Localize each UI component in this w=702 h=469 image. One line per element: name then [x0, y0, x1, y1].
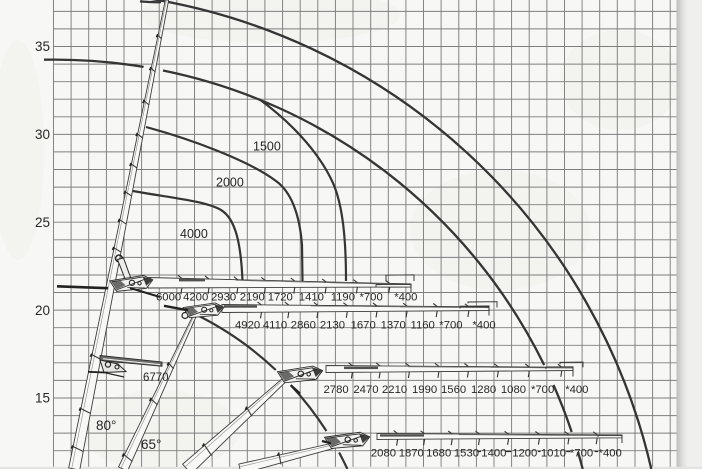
svg-text:4200: 4200	[183, 292, 208, 304]
svg-text:1500: 1500	[253, 140, 281, 154]
svg-text:1990: 1990	[412, 384, 437, 396]
svg-text:*400: *400	[394, 292, 417, 304]
svg-text:1560: 1560	[441, 384, 466, 396]
svg-text:*700: *700	[439, 320, 462, 332]
svg-text:1720: 1720	[268, 292, 293, 304]
svg-text:65°: 65°	[141, 437, 161, 452]
svg-text:1680: 1680	[426, 448, 451, 460]
svg-text:6000: 6000	[156, 292, 181, 304]
svg-text:1160: 1160	[411, 320, 435, 332]
svg-text:2860: 2860	[291, 320, 316, 332]
svg-text:4110: 4110	[263, 320, 287, 332]
svg-text:35: 35	[35, 39, 50, 54]
svg-text:1410: 1410	[299, 292, 324, 304]
svg-text:1080: 1080	[501, 384, 526, 396]
svg-text:*700: *700	[570, 448, 593, 460]
svg-text:2190: 2190	[240, 292, 265, 304]
svg-text:4000: 4000	[180, 227, 208, 241]
svg-text:1870: 1870	[399, 448, 424, 460]
svg-text:30: 30	[35, 127, 50, 142]
svg-text:25: 25	[35, 215, 50, 230]
svg-text:1280: 1280	[471, 384, 496, 396]
svg-text:2930: 2930	[211, 292, 236, 304]
svg-text:4920: 4920	[235, 320, 260, 332]
svg-text:2780: 2780	[324, 384, 349, 396]
svg-text:*700: *700	[531, 384, 554, 396]
svg-text:1530: 1530	[454, 448, 479, 460]
svg-text:20: 20	[35, 303, 50, 318]
svg-text:2080: 2080	[371, 448, 396, 460]
svg-text:*400: *400	[599, 448, 622, 460]
svg-text:1010: 1010	[541, 448, 566, 460]
svg-text:15: 15	[35, 391, 50, 406]
svg-text:2130: 2130	[320, 320, 345, 332]
svg-text:1400: 1400	[481, 448, 506, 460]
svg-text:*400: *400	[565, 384, 588, 396]
svg-text:2000: 2000	[216, 176, 244, 190]
svg-text:1200: 1200	[512, 448, 537, 460]
svg-text:*400: *400	[472, 320, 495, 332]
svg-text:1190: 1190	[331, 292, 355, 304]
svg-text:1670: 1670	[351, 320, 376, 332]
svg-text:1370: 1370	[381, 320, 406, 332]
svg-text:80°: 80°	[96, 418, 116, 433]
svg-text:*700: *700	[360, 292, 383, 304]
svg-text:2470: 2470	[353, 384, 378, 396]
svg-text:2210: 2210	[382, 384, 407, 396]
svg-text:6770: 6770	[143, 372, 169, 384]
